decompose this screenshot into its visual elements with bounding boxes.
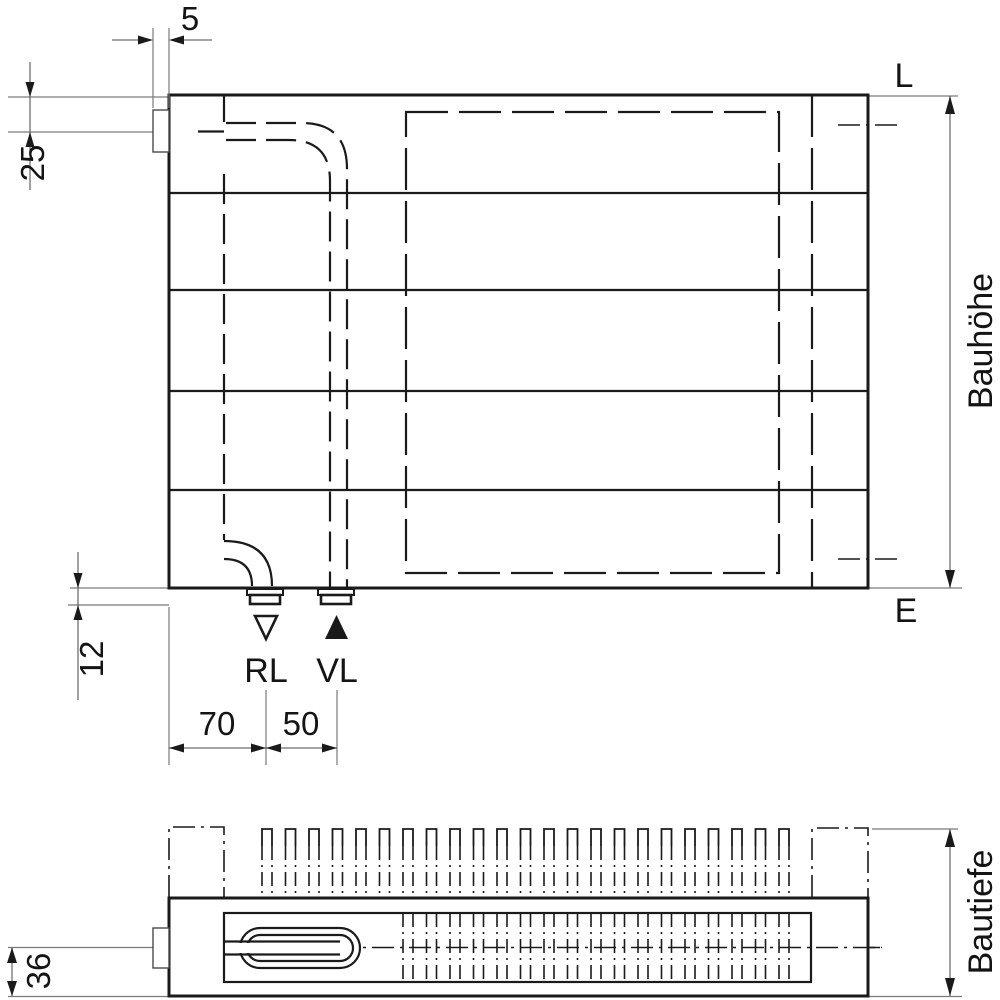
arrow-left-icon bbox=[266, 744, 281, 753]
arrow-left-icon bbox=[169, 744, 184, 753]
label-bautiefe: Bautiefe bbox=[962, 850, 1000, 975]
phantom-side-section-left bbox=[169, 827, 224, 897]
fin bbox=[403, 829, 413, 846]
fin bbox=[732, 829, 742, 846]
arrow-down-icon bbox=[945, 978, 955, 996]
fin bbox=[756, 829, 766, 846]
fin bbox=[427, 829, 437, 846]
dim-text-50: 50 bbox=[283, 705, 320, 742]
fin bbox=[568, 829, 578, 846]
front-view: RL VL bbox=[8, 95, 962, 690]
dim-text-70: 70 bbox=[199, 705, 236, 742]
fin bbox=[262, 829, 272, 846]
fin bbox=[309, 829, 319, 846]
fin bbox=[662, 829, 672, 846]
water-channel-capsule bbox=[224, 928, 360, 968]
top-view bbox=[8, 827, 962, 997]
return-flow-triangle-icon bbox=[255, 616, 277, 639]
fin bbox=[685, 829, 695, 846]
label-top-edge: L bbox=[895, 57, 914, 95]
arrow-down-icon bbox=[945, 570, 955, 588]
arrow-right-icon bbox=[322, 744, 337, 753]
technical-drawing-radiator: RL VL 5 25 12 70 50 L E bbox=[0, 0, 1000, 1000]
arrow-up-icon bbox=[945, 829, 955, 847]
fin bbox=[709, 829, 719, 846]
arrow-down-icon bbox=[7, 981, 17, 996]
label-return: RL bbox=[244, 652, 287, 690]
rl-connection-nipple bbox=[247, 589, 283, 604]
arrow-up-icon bbox=[945, 96, 955, 114]
fin bbox=[333, 829, 343, 846]
fin bbox=[615, 829, 625, 846]
fin bbox=[521, 829, 531, 846]
dim-text-36: 36 bbox=[20, 953, 57, 990]
wall-bracket bbox=[153, 110, 169, 152]
label-bauhoehe: Bauhöhe bbox=[962, 273, 1000, 409]
fin bbox=[497, 829, 507, 846]
drawing-canvas: RL VL 5 25 12 70 50 L E bbox=[0, 0, 1000, 1000]
supply-flow-triangle-icon bbox=[325, 615, 348, 639]
fin bbox=[779, 829, 789, 846]
arrow-up-icon bbox=[74, 605, 83, 620]
arrow-right-icon bbox=[138, 36, 153, 45]
vl-connection-nipple bbox=[318, 589, 354, 604]
wall-bracket-top-view bbox=[153, 928, 169, 968]
fin bbox=[356, 829, 366, 846]
dim-text-25: 25 bbox=[14, 145, 51, 182]
arrow-down-icon bbox=[26, 82, 35, 97]
dim-text-12: 12 bbox=[73, 641, 110, 678]
dim-text-5: 5 bbox=[181, 0, 199, 37]
convector-fins bbox=[262, 829, 789, 897]
arrow-right-icon bbox=[251, 744, 266, 753]
arrow-down-icon bbox=[74, 573, 83, 588]
fin bbox=[450, 829, 460, 846]
fin bbox=[380, 829, 390, 846]
label-supply: VL bbox=[316, 652, 358, 690]
arrow-up-icon bbox=[7, 948, 17, 964]
fin bbox=[286, 829, 296, 846]
phantom-side-section-right bbox=[812, 828, 868, 897]
fin bbox=[544, 829, 554, 846]
fin bbox=[591, 829, 601, 846]
fin bbox=[638, 829, 648, 846]
fin bbox=[474, 829, 484, 846]
label-bottom-edge: E bbox=[895, 592, 918, 630]
radiator-body bbox=[169, 95, 868, 588]
